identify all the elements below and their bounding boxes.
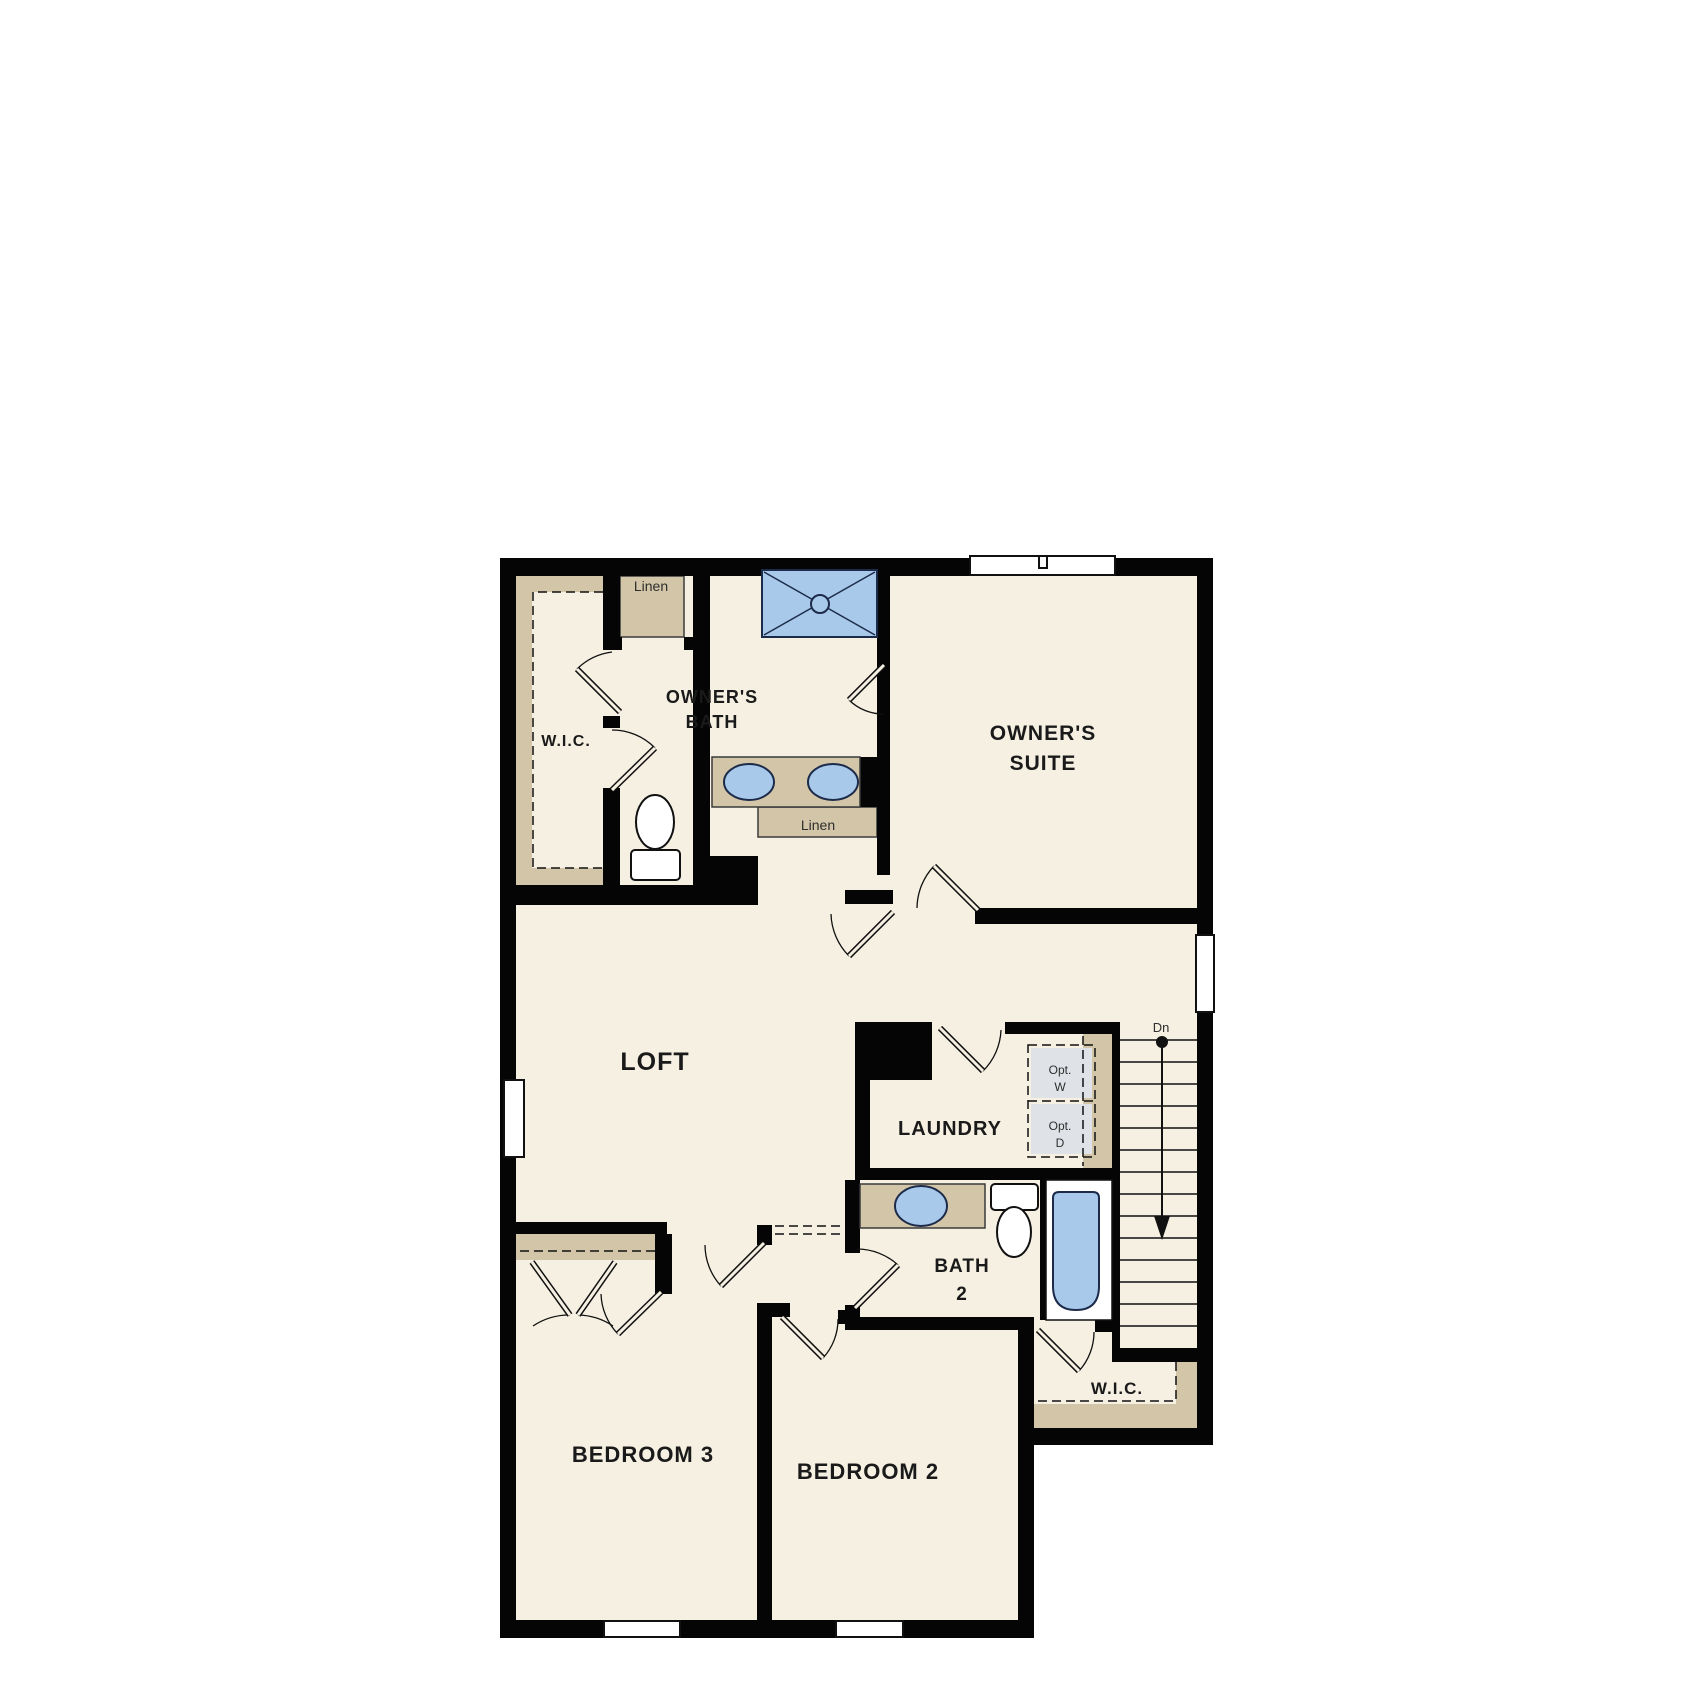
bath2-sink xyxy=(895,1186,947,1226)
room-label-owners-bath-1: OWNER'S xyxy=(666,687,758,707)
room-label-owners-bath-2: BATH xyxy=(686,712,739,732)
double-vanity xyxy=(712,757,860,807)
room-label-bedroom3: BEDROOM 3 xyxy=(572,1442,714,1467)
bedroom3-closet-band xyxy=(516,1234,667,1260)
room-label-linen-upper: Linen xyxy=(634,578,668,594)
label-opt-washer-2: W xyxy=(1054,1080,1066,1094)
room-label-laundry: LAUNDRY xyxy=(898,1118,1002,1140)
window-bottom-bedroom2 xyxy=(836,1621,903,1637)
room-label-bedroom2: BEDROOM 2 xyxy=(797,1459,939,1484)
floor-plan-page: W.I.C. Linen OWNER'S BATH OWNER'S SUITE … xyxy=(0,0,1700,1688)
room-label-owners-suite-1: OWNER'S xyxy=(990,722,1097,745)
label-opt-dryer-1: Opt. xyxy=(1049,1119,1072,1133)
room-label-linen-mid: Linen xyxy=(801,817,835,833)
room-label-bath2-1: BATH xyxy=(934,1256,989,1277)
room-label-wic-lower: W.I.C. xyxy=(1091,1379,1143,1398)
window-bottom-bedroom3 xyxy=(604,1621,680,1637)
wic-lower-band-bottom xyxy=(1034,1404,1197,1430)
wic-upper-floor xyxy=(532,592,603,868)
window-left-loft xyxy=(504,1080,524,1157)
room-label-loft: LOFT xyxy=(620,1048,689,1076)
label-stairs-down: Dn xyxy=(1153,1020,1170,1035)
shower-pan xyxy=(762,570,877,637)
vanity-sink-left xyxy=(724,764,774,800)
wic-lower-band-right xyxy=(1176,1362,1197,1430)
floor-plan-svg: W.I.C. Linen OWNER'S BATH OWNER'S SUITE … xyxy=(0,0,1700,1688)
bath2-vanity xyxy=(860,1184,985,1228)
window-right-stairs xyxy=(1196,935,1214,1012)
label-opt-dryer-2: D xyxy=(1056,1136,1065,1150)
label-opt-washer-1: Opt. xyxy=(1049,1063,1072,1077)
room-label-wic-upper: W.I.C. xyxy=(541,733,591,750)
window-top-tick xyxy=(1039,556,1047,568)
room-label-owners-suite-2: SUITE xyxy=(1010,752,1077,775)
room-label-bath2-2: 2 xyxy=(956,1284,968,1305)
bathtub xyxy=(1046,1180,1112,1320)
vanity-sink-right xyxy=(808,764,858,800)
